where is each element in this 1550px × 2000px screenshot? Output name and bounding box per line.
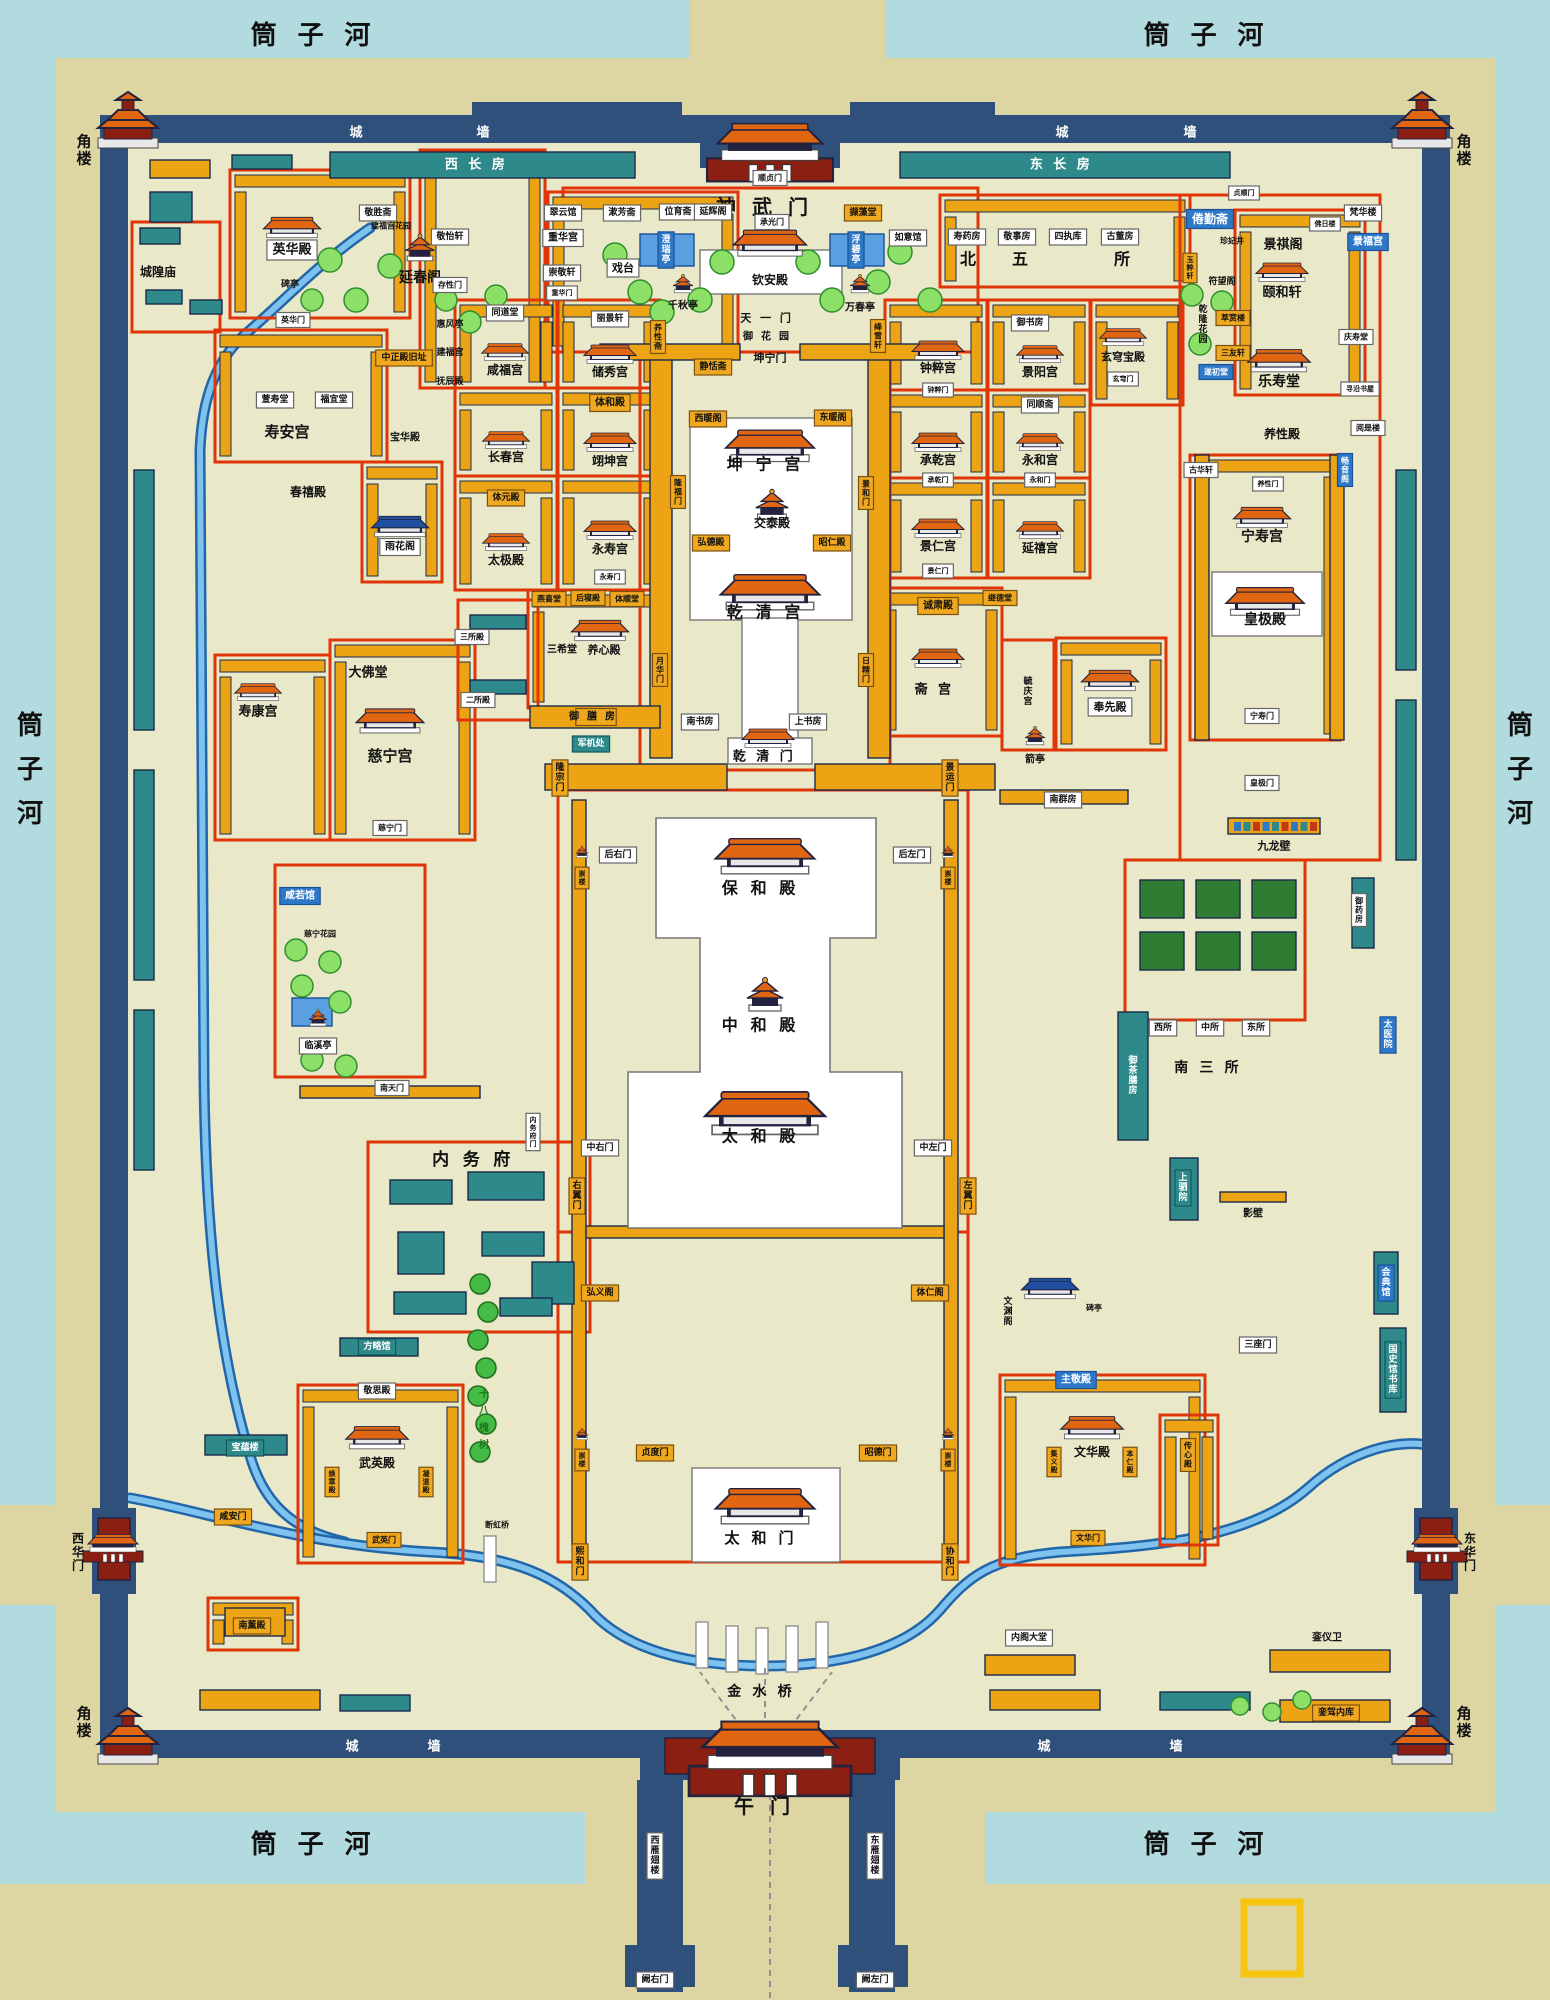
tree — [918, 288, 942, 312]
map-label: 茶 — [1127, 1064, 1138, 1076]
map-label: 御花园 — [742, 330, 797, 343]
building — [340, 1695, 410, 1711]
tree — [866, 270, 890, 294]
map-label: 楼 — [1456, 1721, 1471, 1739]
nine-dragon-tile — [1291, 822, 1298, 831]
map-label: 畅 — [1341, 456, 1349, 466]
map-label: 焕 — [329, 1469, 336, 1478]
map-label: 武英殿 — [359, 1455, 396, 1470]
map-label: 凝 — [423, 1469, 431, 1478]
map-label: 精 — [862, 665, 870, 675]
map-label: 继德堂 — [988, 593, 1012, 603]
palace-hall-icon — [584, 433, 636, 452]
palace-hall-icon — [1081, 670, 1138, 690]
building — [1096, 305, 1178, 317]
map-label: 皇极殿 — [1244, 611, 1287, 628]
map-label: 贞度门 — [641, 1446, 668, 1458]
building — [213, 1620, 224, 1644]
map-label: 坤宁宫 — [727, 455, 813, 474]
building — [541, 322, 552, 382]
palace-hall-icon — [483, 534, 530, 551]
map-label: 驷 — [1178, 1182, 1187, 1193]
map-label: 东 — [1464, 1531, 1476, 1546]
building — [232, 155, 292, 169]
map-label: 皇极门 — [1250, 778, 1274, 788]
map-label: 月 — [655, 657, 664, 666]
map-label: 英华门 — [280, 315, 305, 325]
building — [460, 393, 552, 405]
map-label: 城 — [1055, 125, 1068, 141]
map-label: 协 — [945, 1545, 954, 1557]
map-label: 燕喜堂 — [537, 594, 561, 604]
map-label: 诚肃殿 — [923, 599, 954, 612]
map-label: 碑亭 — [281, 278, 299, 290]
map-label: 文华门 — [1076, 1533, 1100, 1543]
palace-map-root: 筒子河筒子河筒子河筒子河筒子河筒子河角楼角楼角楼角楼城墙城墙城墙城墙西长房东长房… — [0, 0, 1550, 2000]
map-label: 长春宫 — [488, 449, 524, 464]
map-label: 角 — [1456, 133, 1471, 151]
palace-hall-icon — [734, 230, 807, 256]
map-label: 殿 — [1183, 1458, 1193, 1468]
map-label: 建福宫 — [436, 346, 463, 358]
building — [367, 467, 437, 479]
map-label: 南薰殿 — [238, 1619, 266, 1631]
building — [1240, 215, 1360, 227]
map-label: 本 — [1126, 1449, 1134, 1458]
building — [563, 410, 574, 470]
map-label: 心 — [1184, 1450, 1192, 1460]
building — [1396, 470, 1416, 670]
map-label: 府 — [530, 1131, 537, 1140]
building — [134, 1010, 154, 1170]
map-label: 隆 — [1198, 313, 1208, 325]
tree — [485, 285, 507, 307]
palace-hall-icon — [1248, 350, 1310, 372]
map-label: 国 — [1388, 1344, 1397, 1355]
map-label: 奉先殿 — [1093, 700, 1128, 714]
map-label: 萃赏楼 — [1221, 313, 1245, 323]
map-label: 永和门 — [1029, 475, 1051, 484]
palace-hall-icon — [1100, 329, 1147, 346]
building — [815, 764, 995, 790]
tree — [820, 288, 844, 312]
building — [470, 615, 526, 629]
map-label: 崇 — [945, 869, 952, 878]
map-label: 存性门 — [437, 280, 462, 290]
map-label: 筒子河 — [1144, 1829, 1284, 1860]
tree — [478, 1302, 498, 1322]
map-label: 义 — [1050, 1457, 1059, 1466]
map-label: 子 — [17, 755, 43, 785]
palace-hall-icon — [912, 649, 964, 668]
map-label: 角 — [1456, 1705, 1471, 1723]
map-label: 咸安门 — [219, 1510, 246, 1522]
map-label: 敬事房 — [1002, 230, 1030, 242]
nine-dragon-tile — [1253, 822, 1260, 831]
map-label: 养性殿 — [1263, 426, 1301, 441]
map-label: 承乾宫 — [920, 452, 956, 467]
building — [868, 352, 890, 758]
map-label: 宗 — [555, 771, 564, 783]
map-label: 景福宫 — [1353, 235, 1383, 248]
map-label: 筒 — [17, 710, 43, 741]
building — [1061, 643, 1161, 655]
map-label: 门 — [945, 781, 954, 793]
map-label: 景仁门 — [927, 566, 949, 575]
map-label: 八 — [478, 1405, 490, 1417]
building — [1349, 232, 1360, 389]
palace-hall-icon — [716, 1489, 815, 1524]
building — [1165, 1437, 1176, 1539]
map-label: 斋 — [653, 340, 663, 350]
map-label: 筒子河 — [251, 1829, 391, 1860]
map-label: 门 — [862, 673, 870, 683]
tree — [710, 250, 734, 274]
map-label: 珍妃井 — [1220, 236, 1244, 246]
map-label: 筒子河 — [1144, 20, 1284, 51]
map-label: 馆 — [1381, 1286, 1390, 1298]
map-label: 西 — [650, 1835, 659, 1846]
map-label: 门 — [72, 1557, 84, 1572]
building — [367, 484, 378, 576]
map-label: 门 — [945, 1565, 954, 1577]
map-label: 雨花阁 — [385, 540, 415, 553]
map-label: 翊坤宫 — [592, 453, 628, 468]
map-label: 庆寿堂 — [1343, 332, 1368, 342]
bridge — [696, 1622, 708, 1668]
map-label: 后左门 — [898, 848, 925, 860]
map-label: 绛 — [874, 322, 883, 332]
tree — [329, 991, 351, 1013]
building — [335, 662, 346, 834]
map-label: 上书房 — [794, 715, 821, 727]
palace-hall-icon — [235, 684, 282, 701]
map-label: 亭 — [851, 253, 860, 265]
map-label: 英华殿 — [271, 242, 312, 258]
map-label: 史 — [1388, 1353, 1398, 1365]
map-label: 楼 — [579, 1459, 586, 1468]
building — [971, 322, 982, 384]
map-label: 河 — [17, 799, 43, 829]
map-label: 昭德门 — [864, 1446, 891, 1458]
bridge — [484, 1536, 496, 1582]
map-label: 寻沿书屋 — [1346, 384, 1374, 393]
map-label: 延辉阁 — [698, 205, 726, 217]
building — [971, 500, 982, 572]
map-label: 景阳宫 — [1022, 364, 1058, 379]
building — [150, 160, 210, 178]
map-label: 同顺斋 — [1026, 398, 1054, 410]
map-label: 太极殿 — [488, 552, 525, 567]
tree — [468, 1330, 488, 1350]
map-label: 药 — [1355, 905, 1363, 915]
map-label: 御 — [1127, 1054, 1137, 1066]
tree — [335, 1055, 357, 1077]
map-label: 轩 — [874, 339, 882, 349]
map-label: 会 — [1381, 1266, 1391, 1278]
map-label: 门 — [1464, 1557, 1476, 1572]
map-label: 门 — [862, 496, 870, 506]
map-label: 静恬斋 — [699, 360, 727, 372]
map-label: 阁 — [1341, 473, 1349, 483]
map-label: 金水桥 — [726, 1683, 803, 1700]
map-label: 华 — [1464, 1544, 1476, 1559]
nine-dragon-tile — [1263, 822, 1270, 831]
outer-ground — [0, 1884, 1550, 2000]
map-label: 角 — [76, 133, 91, 151]
palace-hall-icon — [912, 519, 964, 538]
map-label: 养 — [653, 323, 662, 333]
map-label: 宫 — [1023, 695, 1032, 707]
map-label: 右 — [571, 1179, 581, 1191]
map-label: 承光门 — [760, 217, 784, 227]
city-wall — [850, 102, 995, 116]
map-label: 永寿门 — [599, 572, 621, 581]
map-label: 门 — [963, 1199, 972, 1211]
building — [1005, 1380, 1200, 1392]
palace-hall-icon — [1061, 1417, 1123, 1439]
building — [985, 1655, 1075, 1675]
map-label: 殿 — [328, 1485, 337, 1494]
map-label: 南三所 — [1174, 1059, 1250, 1076]
building — [1165, 1420, 1213, 1432]
building — [563, 498, 574, 584]
building — [468, 1172, 544, 1200]
map-label: 河 — [1507, 799, 1533, 829]
tree — [470, 1274, 490, 1294]
building — [1005, 1397, 1016, 1559]
map-label: 仁 — [1127, 1457, 1134, 1466]
map-label: 南群房 — [1049, 793, 1076, 805]
map-label: 建福宫花园 — [370, 221, 411, 231]
map-label: 武英门 — [372, 1535, 396, 1545]
map-label: 翼 — [962, 1190, 972, 1201]
map-label: 弘德殿 — [697, 536, 725, 548]
map-label: 断虹桥 — [485, 1520, 510, 1530]
map-label: 雪 — [874, 332, 882, 341]
map-label: 古华轩 — [1189, 465, 1213, 475]
map-label: 翅 — [649, 1854, 659, 1866]
map-label: 寿康宫 — [238, 704, 277, 720]
map-label: 园 — [1198, 334, 1207, 345]
map-label: 寿安宫 — [264, 423, 309, 441]
map-label: 楼 — [76, 149, 91, 167]
map-label: 熙 — [575, 1546, 584, 1557]
map-label: 翠云馆 — [549, 206, 576, 218]
building — [945, 217, 956, 281]
map-label: 阙右门 — [641, 1973, 668, 1985]
map-label: 阅是楼 — [1356, 423, 1380, 433]
map-label: 筒子河 — [251, 20, 391, 51]
map-label: 房 — [1355, 913, 1363, 923]
map-label: 音 — [1341, 465, 1349, 475]
map-label: 和 — [574, 1555, 584, 1567]
map-label: 西长房 — [445, 157, 515, 173]
building — [460, 498, 471, 584]
building — [482, 1232, 544, 1256]
map-label: 浮 — [851, 233, 860, 245]
map-label: 楼 — [870, 1864, 879, 1876]
map-label: 传 — [1183, 1441, 1192, 1451]
outer-ground — [1495, 1505, 1550, 1605]
map-label: 保和殿 — [721, 879, 808, 898]
map-label: 坤宁门 — [754, 351, 787, 365]
building — [1061, 660, 1072, 744]
map-label: 雁 — [650, 1845, 659, 1856]
map-label: 中右门 — [586, 1141, 613, 1153]
building — [545, 764, 727, 790]
map-label: 库 — [1388, 1383, 1397, 1395]
map-label: 乐寿堂 — [1258, 373, 1300, 390]
map-label: 慈宁花园 — [304, 929, 336, 939]
nine-dragon-tile — [1282, 822, 1289, 831]
blue-roof-hall-icon — [371, 516, 428, 536]
building — [1330, 455, 1344, 740]
building — [1074, 500, 1085, 572]
palace-hall-icon — [584, 345, 636, 364]
map-label: 翼 — [571, 1190, 581, 1201]
palace-hall-icon — [356, 709, 424, 733]
map-label: 内阁大堂 — [1011, 1631, 1047, 1643]
map-label: 翅 — [869, 1854, 879, 1866]
map-label: 城 — [349, 125, 362, 141]
map-label: 墙 — [1169, 1739, 1182, 1755]
palace-hall-icon — [716, 839, 815, 874]
tree — [319, 951, 341, 973]
map-label: 隆 — [674, 478, 683, 488]
tree — [628, 280, 652, 304]
map-label: 敬思殿 — [362, 1384, 391, 1396]
building — [1270, 1650, 1390, 1672]
map-label: 顺贞门 — [758, 173, 782, 183]
building — [1220, 1192, 1286, 1202]
building — [1195, 455, 1209, 740]
map-label: 崇 — [945, 1451, 952, 1460]
palace-hall-icon — [912, 433, 964, 452]
bridge — [786, 1626, 798, 1672]
map-label: 崇 — [579, 869, 586, 878]
building — [563, 322, 574, 382]
map-label: 澄 — [661, 233, 671, 245]
map-label: 景祺阁 — [1263, 237, 1302, 253]
map-label: 华 — [72, 1544, 84, 1559]
map-label: 乾 — [1198, 303, 1207, 315]
map-label: 十 — [479, 1387, 489, 1400]
map-label: 务 — [530, 1123, 538, 1132]
bridge — [816, 1622, 828, 1668]
map-label: 亭 — [661, 253, 670, 265]
building — [335, 645, 470, 657]
tree — [344, 288, 368, 312]
map-label: 养心殿 — [587, 643, 622, 657]
nine-dragon-tile — [1244, 822, 1251, 831]
map-label: 箭亭 — [1025, 753, 1045, 766]
building — [134, 770, 154, 980]
map-label: 遂初堂 — [1204, 367, 1228, 377]
map-label: 楼 — [945, 1459, 952, 1468]
building — [303, 1407, 314, 1557]
building — [541, 498, 552, 584]
map-label: 毓 — [1023, 675, 1032, 687]
map-label: 钦安殿 — [752, 272, 789, 287]
building — [390, 1180, 452, 1204]
palace-hall-icon — [1017, 522, 1064, 539]
map-label: 东长房 — [1030, 157, 1100, 173]
map-label: 钟粹门 — [928, 385, 949, 394]
building — [220, 677, 231, 834]
bridge — [756, 1628, 768, 1674]
map-label: 弘义阁 — [586, 1286, 613, 1298]
building — [993, 322, 1004, 384]
building — [1252, 880, 1296, 918]
map-label: 寿药房 — [953, 230, 980, 242]
tree — [1181, 284, 1203, 306]
building — [140, 228, 180, 244]
map-label: 漱芳斋 — [608, 206, 636, 218]
map-label: 体顺堂 — [615, 594, 639, 604]
nine-dragon-tile — [1310, 822, 1317, 831]
map-label: 渊 — [1003, 1305, 1012, 1317]
map-label: 中所 — [1201, 1021, 1219, 1033]
map-label: 后右门 — [604, 848, 631, 860]
map-label: 交泰殿 — [754, 515, 791, 530]
map-label: 筒 — [1507, 710, 1533, 741]
palace-hall-icon — [482, 344, 529, 361]
map-label: 宁寿门 — [1250, 711, 1274, 721]
map-label: 玉 — [1187, 256, 1194, 264]
map-label: 军机处 — [577, 737, 605, 749]
building — [1396, 700, 1416, 860]
building — [1074, 412, 1085, 472]
building — [220, 660, 325, 672]
map-label: 上 — [1178, 1171, 1187, 1183]
map-label: 同道堂 — [491, 306, 518, 318]
map-label: 书 — [1388, 1373, 1397, 1385]
building — [1167, 322, 1178, 399]
tree — [291, 975, 313, 997]
map-label: 门 — [555, 781, 564, 793]
building — [394, 1292, 466, 1314]
map-label: 东 — [870, 1834, 879, 1846]
map-label: 馆 — [1388, 1363, 1397, 1375]
map-label: 宝蕴楼 — [231, 1441, 258, 1453]
building — [460, 410, 471, 470]
map-label: 崇敬轩 — [548, 266, 575, 278]
map-label: 万春亭 — [844, 301, 875, 314]
map-label: 梵华楼 — [1349, 206, 1376, 218]
nine-dragon-tile — [1272, 822, 1279, 831]
map-label: 墙 — [1183, 125, 1196, 141]
map-label: 墙 — [427, 1739, 440, 1755]
building — [1196, 932, 1240, 970]
map-label: 位育斋 — [664, 205, 692, 217]
building — [1140, 880, 1184, 918]
palace-hall-icon — [584, 521, 636, 540]
tree — [1293, 1691, 1311, 1709]
map-label: 宁寿宫 — [1241, 528, 1283, 545]
map-label: 碑亭 — [1086, 1303, 1102, 1313]
map-label: 后寝殿 — [576, 593, 601, 603]
map-label: 南天门 — [380, 1083, 404, 1093]
outer-ground — [690, 0, 885, 58]
building — [314, 677, 325, 834]
map-label: 阁 — [1003, 1315, 1012, 1327]
building — [1140, 932, 1184, 970]
palace-hall-icon — [742, 729, 794, 748]
map-label: 院 — [1178, 1191, 1187, 1203]
map-label: 体和殿 — [595, 396, 626, 409]
nine-dragon-tile — [1301, 822, 1308, 831]
